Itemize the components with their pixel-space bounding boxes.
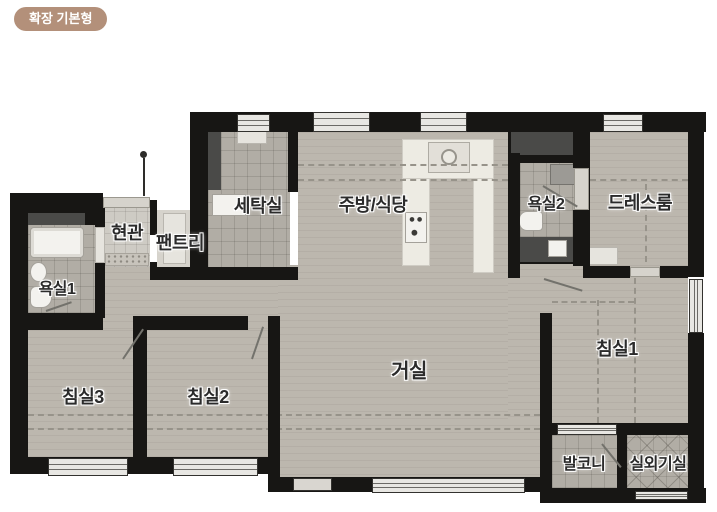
label-bedroom1: 침실1 xyxy=(596,335,638,361)
window xyxy=(420,112,467,132)
wall xyxy=(660,266,688,278)
window xyxy=(689,279,703,333)
entrance-door-threshold xyxy=(103,197,150,208)
wall xyxy=(95,263,105,318)
bathroom2-vanity xyxy=(550,164,575,185)
bathroom2-door-threshold xyxy=(574,168,589,210)
extension-line xyxy=(28,428,540,430)
wall xyxy=(268,316,280,492)
label-living: 거실 xyxy=(391,355,427,384)
label-entrance: 현관 xyxy=(111,219,143,245)
label-bathroom2: 욕실2 xyxy=(528,190,565,214)
plan-type-badge[interactable]: 확장 기본형 xyxy=(14,7,107,31)
wall xyxy=(573,132,590,168)
extension-line xyxy=(298,164,508,166)
label-bedroom3: 침실3 xyxy=(62,383,104,409)
wall xyxy=(150,267,298,280)
dressroom-mat xyxy=(588,247,618,265)
wall xyxy=(617,433,627,490)
window xyxy=(372,478,525,493)
window xyxy=(635,491,688,500)
window xyxy=(603,114,643,132)
bathroom1-door-gap xyxy=(95,227,105,263)
entrance-door-marker-dot xyxy=(140,151,147,158)
extension-line xyxy=(590,179,688,181)
label-dressroom: 드레스룸 xyxy=(608,189,672,215)
bathtub xyxy=(30,227,84,258)
wall xyxy=(147,316,248,330)
wall xyxy=(288,112,298,192)
label-kitchen-dining: 주방/식당 xyxy=(339,191,408,217)
window xyxy=(237,114,270,132)
bathroom2-basin xyxy=(548,240,567,257)
floor-plan: 확장 기본형 xyxy=(0,0,717,512)
kitchen-counter-right xyxy=(473,178,494,273)
wall xyxy=(95,207,105,227)
bathroom2-toilet xyxy=(519,211,543,231)
label-laundry: 세탁실 xyxy=(234,192,282,218)
laundry-counter xyxy=(237,131,267,144)
window xyxy=(313,112,370,132)
wall xyxy=(10,316,103,330)
wall xyxy=(508,155,578,163)
cooktop xyxy=(405,212,427,243)
refrigerator-unit xyxy=(511,130,573,155)
wall xyxy=(150,262,157,280)
window xyxy=(173,458,258,476)
window xyxy=(557,424,617,435)
entrance-mat xyxy=(105,253,149,266)
label-pantry: 팬트리 xyxy=(156,229,204,255)
wall xyxy=(688,333,704,503)
laundry-duct xyxy=(208,132,221,190)
window xyxy=(48,458,128,476)
sink-basin-icon xyxy=(441,149,457,165)
label-outdoor-unit: 실외기실 xyxy=(630,450,687,474)
label-bedroom2: 침실2 xyxy=(187,383,229,409)
entrance-door-marker xyxy=(143,158,145,196)
window xyxy=(293,478,332,491)
wall xyxy=(10,193,28,474)
wardrobe-outline xyxy=(597,300,599,423)
dressroom-door-threshold xyxy=(630,267,660,277)
wardrobe-outline xyxy=(552,301,634,303)
extension-line xyxy=(28,414,540,416)
wall xyxy=(540,313,552,490)
wall xyxy=(583,266,630,278)
label-bathroom1: 욕실1 xyxy=(39,275,76,299)
label-balcony: 발코니 xyxy=(563,450,606,474)
wall xyxy=(508,153,520,278)
wall xyxy=(688,112,704,277)
extension-line xyxy=(298,179,508,181)
wall xyxy=(573,210,590,266)
